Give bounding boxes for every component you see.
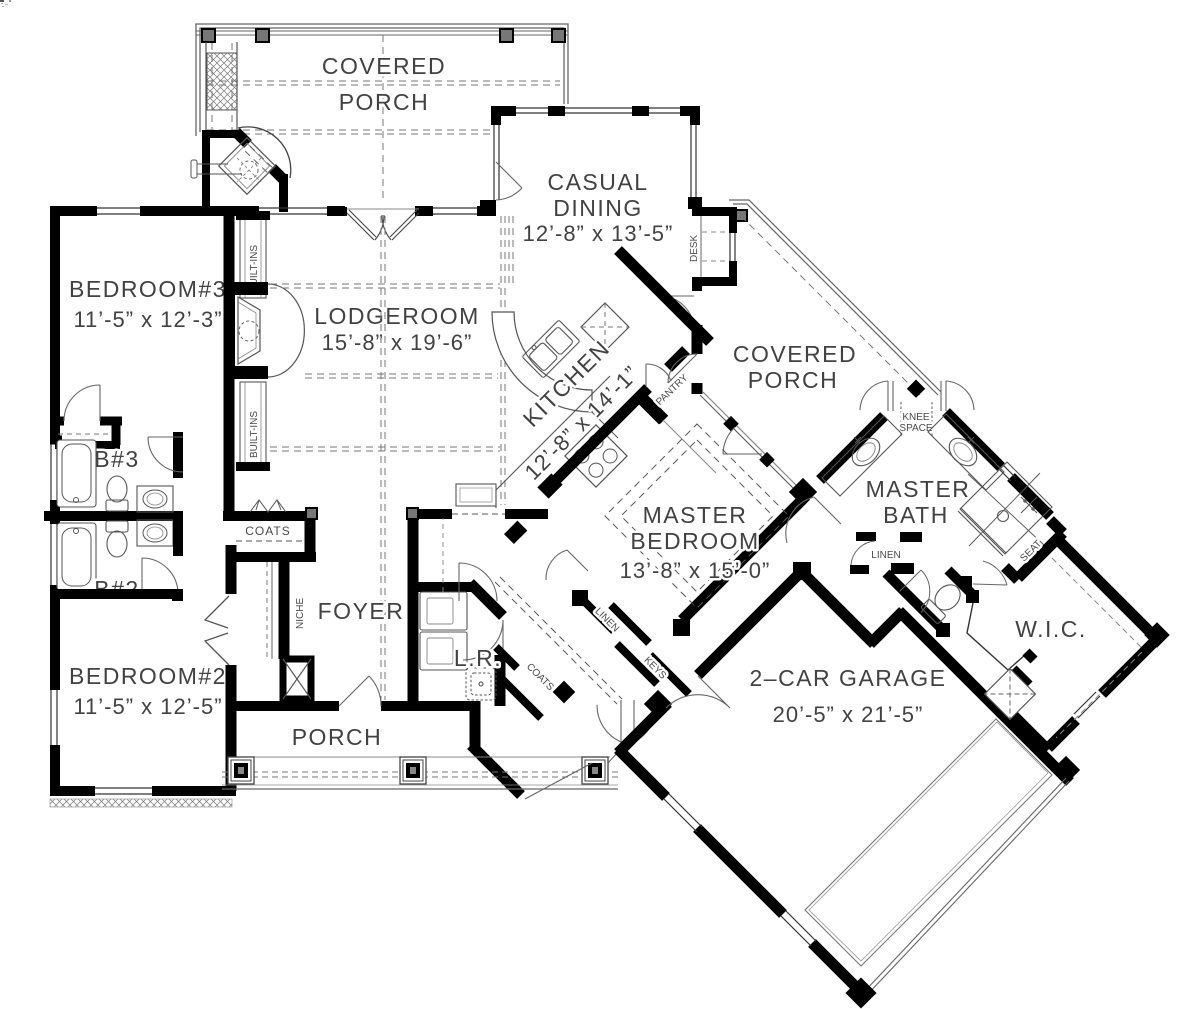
svg-text:MASTER: MASTER (866, 476, 971, 502)
svg-text:PORCH: PORCH (748, 367, 839, 393)
svg-text:BUILT-INS: BUILT-INS (249, 411, 260, 458)
svg-text:BEDROOM: BEDROOM (630, 528, 759, 554)
svg-text:CASUAL: CASUAL (547, 169, 648, 195)
svg-text:11’-5” x 12’-3”: 11’-5” x 12’-3” (73, 307, 222, 332)
svg-text:W.I.C.: W.I.C. (1015, 616, 1087, 642)
svg-text:12’-8” x 13’-5”: 12’-8” x 13’-5” (523, 221, 674, 246)
svg-text:15’-8” x 19’-6”: 15’-8” x 19’-6” (322, 330, 473, 355)
svg-text:COVERED: COVERED (733, 341, 857, 367)
svg-text:PORCH: PORCH (292, 724, 383, 750)
svg-text:LINEN: LINEN (871, 550, 900, 561)
svg-text:LODGEROOM: LODGEROOM (314, 303, 480, 329)
svg-text:BEDROOM#3: BEDROOM#3 (69, 276, 227, 302)
svg-text:20’-5” x 21’-5”: 20’-5” x 21’-5” (773, 702, 924, 727)
svg-text:BEDROOM#2: BEDROOM#2 (69, 663, 227, 689)
svg-text:B#3: B#3 (94, 446, 139, 472)
svg-text:COATS: COATS (245, 524, 290, 538)
svg-text:COVERED: COVERED (322, 53, 446, 79)
svg-text:DESK: DESK (689, 234, 700, 262)
svg-text:2–CAR GARAGE: 2–CAR GARAGE (750, 665, 947, 691)
svg-text:11’-5” x 12’-5”: 11’-5” x 12’-5” (73, 694, 222, 719)
svg-text:NICHE: NICHE (295, 598, 306, 629)
svg-text:BATH: BATH (883, 502, 949, 528)
svg-text:FOYER: FOYER (318, 598, 405, 624)
svg-text:13’-8” x 15’-0”: 13’-8” x 15’-0” (620, 558, 771, 583)
svg-text:PORCH: PORCH (339, 89, 430, 115)
svg-text:KNEE: KNEE (902, 412, 930, 423)
svg-text:MASTER: MASTER (643, 502, 748, 528)
svg-text:DINING: DINING (553, 195, 643, 221)
